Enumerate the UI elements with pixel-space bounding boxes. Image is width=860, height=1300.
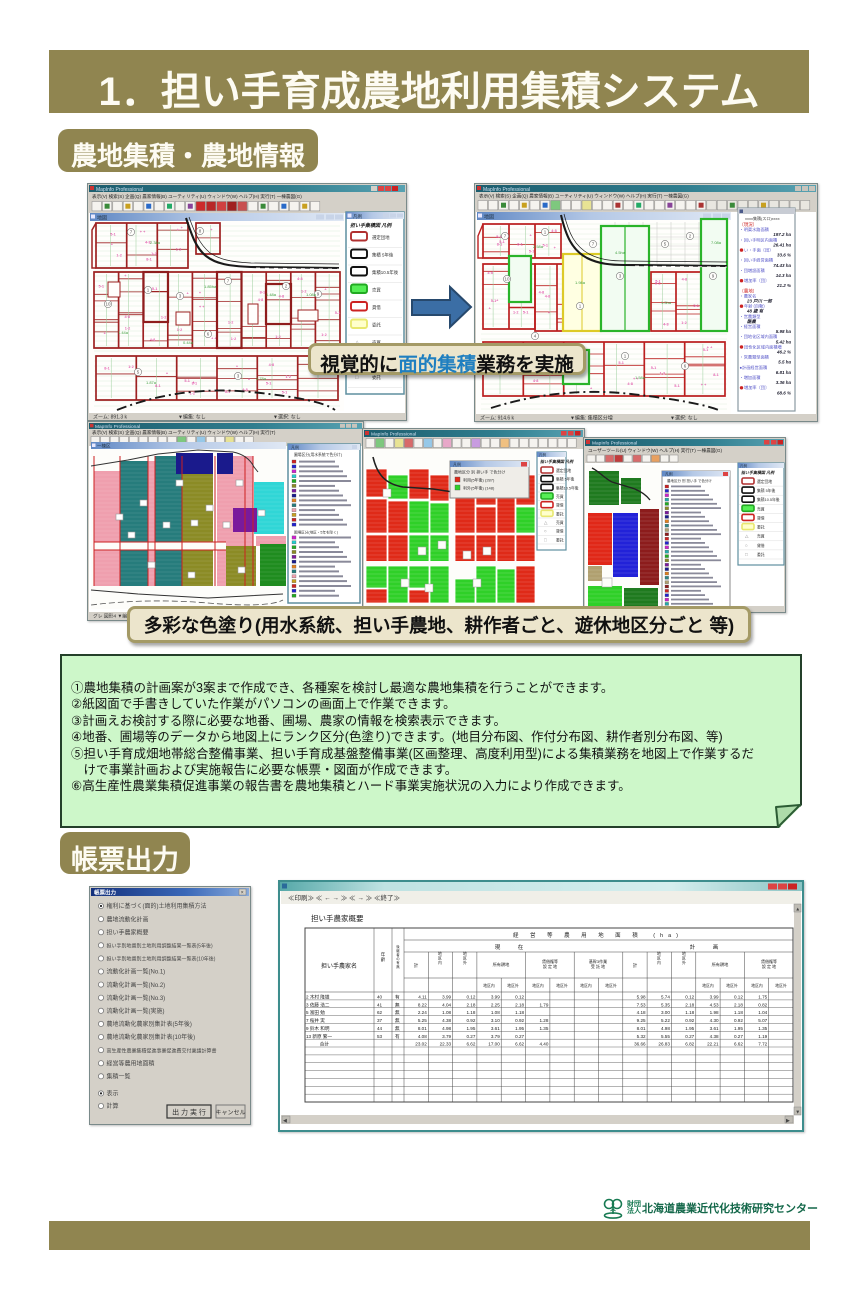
svg-text:5.98: 5.98 [637, 995, 646, 1000]
svg-text:表示(V) 検索(S) 企画(Q) 農家情報(B) ユーティ: 表示(V) 検索(S) 企画(Q) 農家情報(B) ユーティリティ(U) ウィン… [479, 193, 689, 200]
svg-text:0.92: 0.92 [466, 1018, 475, 1023]
svg-text:地区外: 地区外 [775, 983, 787, 988]
svg-text:5 富田 勉: 5 富田 勉 [306, 1009, 325, 1016]
svg-text:23.02: 23.02 [415, 1042, 427, 1047]
svg-text:8.01: 8.01 [418, 1026, 427, 1031]
svg-text:凡例: 凡例 [740, 463, 748, 468]
svg-text:1.18: 1.18 [515, 1010, 524, 1015]
svg-text:7.53: 7.53 [637, 1002, 646, 1007]
svg-text:2.18: 2.18 [466, 1002, 475, 1007]
svg-text:4.08: 4.08 [418, 1034, 427, 1039]
svg-text:▲: ▲ [795, 907, 800, 913]
svg-text:1.85ha: 1.85ha [204, 284, 217, 289]
svg-text:・増加面積: ・増加面積 [740, 374, 762, 381]
svg-text:4.98: 4.98 [442, 1026, 451, 1031]
svg-text:内: 内 [657, 960, 661, 965]
svg-text:0.27: 0.27 [734, 1034, 743, 1039]
svg-text:所有耕地: 所有耕地 [493, 961, 511, 968]
svg-text:6.62: 6.62 [515, 1042, 524, 1047]
svg-text:1.08: 1.08 [491, 1010, 500, 1015]
svg-text:8.22: 8.22 [418, 1002, 427, 1007]
svg-text:4·8: 4·8 [150, 338, 156, 342]
svg-text:選定団地: 選定団地 [372, 234, 390, 241]
svg-text:5.5 ha: 5.5 ha [778, 360, 791, 365]
svg-text:6.62: 6.62 [466, 1042, 475, 1047]
svg-text:地区内: 地区内 [532, 983, 544, 988]
svg-text:集積 5年後: 集積 5年後 [372, 252, 394, 259]
svg-text:4.98: 4.98 [661, 1026, 670, 1031]
svg-text:37: 37 [377, 1018, 383, 1023]
svg-text:1·2: 1·2 [116, 253, 122, 257]
svg-text:0.82: 0.82 [758, 1002, 767, 1007]
svg-text:農地区分 別 担い手 で色分け: 農地区分 別 担い手 で色分け [454, 469, 505, 475]
svg-text:5-1: 5-1 [110, 233, 116, 237]
svg-text:3 佐藤 浩二: 3 佐藤 浩二 [306, 1001, 330, 1008]
svg-text:◀: ◀ [283, 1118, 287, 1124]
svg-text:無: 無 [395, 1017, 400, 1024]
svg-text:5-1: 5-1 [693, 304, 699, 308]
svg-text:MapInfo Professional: MapInfo Professional [592, 441, 637, 447]
svg-text:▼編集: なし: ▼編集: なし [178, 414, 206, 421]
svg-text:1·2: 1·2 [231, 337, 237, 341]
svg-text:10: 10 [504, 277, 510, 282]
svg-text:集積10.5年後: 集積10.5年後 [757, 497, 780, 502]
svg-text:5-1: 5-1 [491, 299, 497, 303]
svg-text:ズーム: 891.3 k: ズーム: 891.3 k [93, 414, 128, 421]
svg-text:1.08: 1.08 [442, 1010, 451, 1015]
svg-text:1.95: 1.95 [515, 1026, 524, 1031]
svg-text:1.87a: 1.87a [146, 380, 157, 385]
svg-text:2.18: 2.18 [685, 1002, 694, 1007]
svg-text:+ +: + + [199, 305, 205, 309]
svg-text:・回い手経営面積: ・回い手経営面積 [740, 257, 774, 264]
svg-text:4.30: 4.30 [710, 1018, 719, 1023]
svg-text:▼選択: なし: ▼選択: なし [273, 414, 301, 421]
svg-text:担い手農家概要: 担い手農家概要 [107, 928, 149, 936]
svg-text:4.5ha: 4.5ha [615, 250, 626, 255]
svg-text:2.38a: 2.38a [150, 240, 161, 245]
svg-text:5.22: 5.22 [661, 1018, 670, 1023]
svg-text:・回い手明区内面積: ・回い手明区内面積 [740, 236, 779, 243]
svg-text:○: ○ [544, 529, 547, 534]
svg-text:5-1: 5-1 [282, 390, 288, 394]
svg-text:4·8: 4·8 [551, 229, 557, 233]
svg-text:1·2: 1·2 [176, 248, 182, 252]
svg-text:地図: 地図 [97, 215, 107, 222]
svg-text:14.3 ha: 14.3 ha [776, 273, 792, 278]
svg-text:ユーザーツール(U) ウィンドウ(W) ヘルプ(H): ユーザーツール(U) ウィンドウ(W) ヘルプ(H) 実行(T) 一棟農図(G) [588, 447, 723, 454]
svg-text:7.08a: 7.08a [711, 240, 722, 245]
svg-text:3.99: 3.99 [491, 995, 500, 1000]
svg-text:4·8: 4·8 [258, 298, 264, 302]
svg-text:0.27: 0.27 [515, 1034, 524, 1039]
svg-text:26.83: 26.83 [658, 1042, 670, 1047]
svg-text:8-1: 8-1 [260, 291, 266, 295]
svg-text:4·8: 4·8 [663, 323, 669, 327]
svg-text:貸借: 貸借 [556, 503, 564, 508]
svg-text:現 在: 現 在 [495, 943, 532, 951]
svg-text:4·8: 4·8 [487, 271, 493, 275]
svg-text:地区内: 地区内 [580, 983, 592, 988]
svg-text:×: × [241, 890, 244, 896]
svg-text:0.12: 0.12 [734, 995, 743, 1000]
svg-text:□: □ [745, 552, 748, 557]
svg-text:1·2: 1·2 [681, 321, 687, 325]
svg-text:0.12: 0.12 [685, 995, 694, 1000]
svg-text:●計画経営面積: ●計画経営面積 [740, 364, 768, 371]
svg-text:8-1: 8-1 [192, 382, 198, 386]
svg-text:3.99: 3.99 [710, 995, 719, 1000]
svg-text:委託: 委託 [757, 525, 765, 530]
svg-text:地区内: 地区内 [751, 983, 763, 988]
svg-text:4·8: 4·8 [279, 295, 285, 299]
svg-text:・経営面積: ・経営面積 [740, 323, 762, 330]
svg-text:3.61: 3.61 [710, 1026, 719, 1031]
svg-text:4.53: 4.53 [710, 1002, 719, 1007]
svg-text:40: 40 [377, 995, 383, 1000]
svg-text:選定団地: 選定団地 [757, 479, 772, 484]
svg-text:0.12: 0.12 [515, 995, 524, 1000]
svg-text:5-1: 5-1 [152, 287, 158, 291]
svg-text:2.58a: 2.58a [533, 244, 544, 249]
svg-text:計 画: 計 画 [690, 943, 727, 951]
svg-text:5.25: 5.25 [418, 1018, 427, 1023]
svg-text:出 力 実 行: 出 力 実 行 [172, 1108, 206, 1117]
svg-text:合計: 合計 [306, 1041, 329, 1048]
svg-text:増加率〔団〕: 増加率〔団〕 [744, 384, 769, 391]
svg-text:4.18: 4.18 [637, 1010, 646, 1015]
svg-text:圃場区分(用水系統で色分け): 圃場区分(用水系統で色分け) [294, 452, 343, 457]
svg-text:農地流動化農家別集計表(5年後): 農地流動化農家別集計表(5年後) [107, 1020, 192, 1028]
svg-text:貸借: 貸借 [372, 304, 381, 311]
svg-text:0.27: 0.27 [466, 1034, 475, 1039]
svg-text:貸借: 貸借 [757, 515, 765, 520]
svg-text:担い手別地番別土地利用調整結果一覧表(5年後): 担い手別地番別土地利用調整結果一覧表(5年後) [107, 943, 213, 950]
svg-text:凡例: 凡例 [453, 461, 461, 467]
svg-text:集積10.5年後: 集積10.5年後 [372, 269, 399, 276]
svg-text:0.92: 0.92 [685, 1018, 694, 1023]
svg-text:集積10.5年後: 集積10.5年後 [556, 485, 579, 490]
svg-text:68.6 %: 68.6 % [777, 390, 791, 395]
svg-text:6.81 ha: 6.81 ha [776, 370, 792, 375]
svg-text:3.36 ha: 3.36 ha [776, 380, 792, 385]
svg-text:圃場区分(地区・5年を除く): 圃場区分(地区・5年を除く) [294, 529, 338, 534]
svg-text:41: 41 [377, 1002, 383, 1007]
svg-text:1.95: 1.95 [685, 1026, 694, 1031]
svg-text:設 定 地: 設 定 地 [762, 963, 776, 969]
svg-text:増加率〔団〕: 増加率〔団〕 [744, 277, 769, 284]
svg-text:4.11: 4.11 [418, 995, 427, 1000]
svg-text:担い手集積図 凡例: 担い手集積図 凡例 [350, 222, 392, 229]
svg-text:1.08a: 1.08a [306, 292, 317, 297]
svg-text:4·8: 4·8 [627, 382, 633, 386]
svg-text:≪印刷≫ ≪ ← → ≫ ≪ → ≫ ≪終了≫: ≪印刷≫ ≪ ← → ≫ ≪ → ≫ ≪終了≫ [288, 893, 400, 902]
svg-text:7 桜井 実: 7 桜井 実 [306, 1017, 325, 1024]
svg-text:地図: 地図 [484, 214, 494, 221]
svg-text:5-1: 5-1 [499, 240, 505, 244]
svg-text:委託: 委託 [556, 537, 564, 542]
svg-text:担い手別地番別土地利用調整結果一覧表(10年後): 担い手別地番別土地利用調整結果一覧表(10年後) [107, 956, 216, 963]
svg-text:1.5ha: 1.5ha [661, 300, 672, 305]
svg-text:8-1: 8-1 [713, 373, 719, 377]
svg-text:委託: 委託 [372, 322, 381, 329]
svg-text:0.44a: 0.44a [183, 340, 194, 345]
svg-text:44: 44 [377, 1026, 383, 1031]
svg-text:17.00: 17.00 [488, 1042, 500, 1047]
svg-text:0.78a: 0.78a [256, 376, 267, 381]
svg-text:集積 5年後: 集積 5年後 [757, 488, 776, 493]
svg-text:計算: 計算 [107, 1102, 119, 1110]
svg-text:売買: 売買 [372, 287, 381, 294]
svg-text:地区外: 地区外 [605, 983, 617, 988]
svg-text:1·2: 1·2 [513, 310, 519, 314]
svg-text:計: 計 [414, 962, 419, 969]
svg-text:1.79: 1.79 [539, 1002, 548, 1007]
svg-text:2.18: 2.18 [734, 1002, 743, 1007]
svg-text:+ +: + + [140, 230, 146, 234]
svg-text:売買: 売買 [757, 534, 765, 539]
svg-text:選定団地: 選定団地 [556, 468, 571, 473]
svg-text:1.18: 1.18 [466, 1010, 475, 1015]
svg-text:MapInfo Professional: MapInfo Professional [371, 432, 416, 438]
svg-text:内: 内 [438, 960, 442, 965]
svg-text:計: 計 [633, 962, 638, 969]
svg-text:8-1: 8-1 [146, 257, 152, 261]
svg-text:担い手集積図 凡例: 担い手集積図 凡例 [741, 470, 775, 475]
svg-text:5-1: 5-1 [496, 235, 502, 239]
svg-text:2.25: 2.25 [491, 1002, 500, 1007]
svg-text:5-1: 5-1 [184, 379, 190, 383]
svg-text:1.95: 1.95 [466, 1026, 475, 1031]
svg-text:0.92: 0.92 [734, 1018, 743, 1023]
svg-text:0.27: 0.27 [685, 1034, 694, 1039]
svg-text:0.12: 0.12 [466, 995, 475, 1000]
svg-text:21.2 %: 21.2 % [776, 283, 791, 288]
svg-text:3.79: 3.79 [442, 1034, 451, 1039]
svg-text:3.00: 3.00 [661, 1010, 670, 1015]
svg-text:26.41 ha: 26.41 ha [772, 242, 791, 247]
svg-text:▼編集: 集積区分増: ▼編集: 集積区分増 [570, 414, 613, 421]
svg-text:13 新原 繁一: 13 新原 繁一 [306, 1033, 332, 1040]
svg-text:1.48a: 1.48a [266, 292, 277, 297]
svg-text:流動化計画一覧(No.2): 流動化計画一覧(No.2) [107, 981, 166, 989]
svg-text:地区外: 地区外 [556, 983, 568, 988]
svg-text:貸借: 貸借 [556, 529, 564, 534]
svg-text:8-1: 8-1 [517, 243, 523, 247]
svg-text:1.35: 1.35 [539, 1026, 548, 1031]
svg-text:5-1: 5-1 [266, 382, 272, 386]
svg-text:1.35: 1.35 [758, 1026, 767, 1031]
svg-text:地区内: 地区内 [483, 983, 495, 988]
svg-text:ズーム: 914.6 k: ズーム: 914.6 k [480, 414, 515, 421]
svg-text:1.98: 1.98 [710, 1010, 719, 1015]
svg-text:凡例: 凡例 [291, 444, 299, 450]
svg-text:設 定 地: 設 定 地 [543, 963, 557, 969]
svg-text:1·2: 1·2 [161, 315, 167, 319]
svg-text:1.28: 1.28 [539, 1018, 548, 1023]
svg-text:▶: ▶ [786, 1118, 790, 1124]
svg-text:農地区分 別 担い手 で色分け: 農地区分 別 担い手 で色分け [667, 478, 712, 483]
svg-text:1.19: 1.19 [758, 1034, 767, 1039]
svg-text:齢: 齢 [381, 956, 386, 963]
svg-text:1.18: 1.18 [734, 1010, 743, 1015]
svg-text:8-1: 8-1 [104, 366, 110, 370]
svg-text:4.04: 4.04 [442, 1002, 451, 1007]
svg-text:2.24: 2.24 [418, 1010, 427, 1015]
svg-text:xxxx集積(スロ)xxxx: xxxx集積(スロ)xxxx [745, 215, 780, 221]
svg-text:売買: 売買 [556, 520, 564, 525]
svg-text:農地流動化農家別集計表(10年後): 農地流動化農家別集計表(10年後) [107, 1033, 196, 1041]
svg-text:▼: ▼ [795, 1110, 800, 1116]
svg-text:凡例: 凡例 [353, 213, 362, 220]
svg-text:22.33: 22.33 [440, 1042, 452, 1047]
svg-text:所有耕地: 所有耕地 [712, 961, 730, 968]
svg-text:▼選択: なし: ▼選択: なし [670, 414, 698, 421]
svg-text:1.44a: 1.44a [118, 330, 129, 335]
svg-text:62: 62 [377, 1010, 383, 1015]
svg-text:外: 外 [463, 960, 467, 965]
svg-text:外: 外 [682, 960, 686, 965]
svg-text:1.95: 1.95 [734, 1026, 743, 1031]
svg-text:表示(V) 検索(S) 企画(Q) 農家情報(B) ユーティ: 表示(V) 検索(S) 企画(Q) 農家情報(B) ユーティリティ(U) ウィン… [92, 429, 276, 436]
svg-text:流動化計画一覧(実施): 流動化計画一覧(実施) [107, 1007, 165, 1015]
svg-text:地区外: 地区外 [507, 983, 519, 988]
svg-text:7.72: 7.72 [758, 1042, 767, 1047]
svg-text:1·2: 1·2 [151, 252, 157, 256]
svg-text:△: △ [544, 520, 548, 525]
svg-text:委託: 委託 [556, 511, 564, 516]
svg-text:4.40: 4.40 [539, 1042, 548, 1047]
svg-text:凡例: 凡例 [665, 472, 673, 477]
svg-text:2 木村 隆雄: 2 木村 隆雄 [306, 994, 330, 1001]
svg-text:4·8: 4·8 [682, 277, 688, 281]
svg-text:一棟区: 一棟区 [97, 443, 111, 450]
svg-text:9 鈴木 和明: 9 鈴木 和明 [306, 1025, 330, 1032]
svg-text:1·2: 1·2 [128, 365, 134, 369]
svg-text:4·8: 4·8 [125, 315, 131, 319]
svg-text:5-1: 5-1 [651, 366, 657, 370]
svg-text:46.2 %: 46.2 % [776, 350, 791, 355]
svg-text:5.07: 5.07 [758, 1018, 767, 1023]
svg-text:8.01: 8.01 [637, 1026, 646, 1031]
svg-text:△: △ [745, 534, 749, 539]
svg-text:4·8: 4·8 [269, 363, 275, 367]
svg-text:・営農類型面積: ・営農類型面積 [740, 354, 770, 361]
svg-text:5.55: 5.55 [661, 1034, 670, 1039]
svg-text:い・手面〔団〕: い・手面〔団〕 [744, 247, 773, 254]
svg-text:・団増設面積: ・団増設面積 [740, 267, 766, 274]
svg-text:1.04: 1.04 [758, 1010, 767, 1015]
svg-text:9.25: 9.25 [637, 1018, 646, 1023]
svg-text:1·2: 1·2 [321, 333, 327, 337]
svg-text:22.21: 22.21 [707, 1042, 719, 1047]
svg-text:無: 無 [395, 1001, 400, 1008]
svg-text:担い手農家概要: 担い手農家概要 [311, 913, 364, 923]
svg-text:+ +: + + [701, 383, 707, 387]
svg-text:5-1: 5-1 [674, 384, 680, 388]
svg-text:0.92: 0.92 [515, 1018, 524, 1023]
svg-text:5-1: 5-1 [618, 361, 624, 365]
svg-text:53: 53 [377, 1034, 383, 1039]
svg-text:5-1: 5-1 [543, 243, 549, 247]
svg-text:4.38: 4.38 [442, 1018, 451, 1023]
svg-text:表示(V) 検索(S) 企画(Q) 農家情報(B) ユーティ: 表示(V) 検索(S) 企画(Q) 農家情報(B) ユーティリティ(U) ウィン… [92, 193, 302, 200]
svg-text:5.32: 5.32 [637, 1034, 646, 1039]
svg-text:集積一覧: 集積一覧 [107, 1073, 131, 1081]
svg-text:経営等農用地面積: 経営等農用地面積 [107, 1059, 155, 1067]
svg-text:有: 有 [395, 994, 400, 1001]
svg-text:帳票出力: 帳票出力 [94, 889, 117, 897]
svg-text:3.79: 3.79 [491, 1034, 500, 1039]
svg-text:・明渠水路面積: ・明渠水路面積 [740, 226, 770, 233]
svg-text:農地流動化計画: 農地流動化計画 [107, 915, 149, 923]
svg-text:5-1: 5-1 [335, 311, 341, 315]
svg-text:流動化計画一覧(No.1): 流動化計画一覧(No.1) [107, 968, 166, 976]
svg-text:1·2: 1·2 [275, 335, 281, 339]
svg-text:4·8: 4·8 [545, 294, 551, 298]
svg-text:・団地化区域内面積: ・団地化区域内面積 [740, 333, 779, 340]
svg-text:1.18: 1.18 [685, 1010, 694, 1015]
svg-text:○: ○ [745, 543, 748, 548]
svg-text:33.6 %: 33.6 % [777, 253, 791, 258]
svg-text:1.75: 1.75 [758, 995, 767, 1000]
svg-text:5.74: 5.74 [661, 995, 670, 1000]
svg-text:権利に基づく(面的)土地利用集積方法: 権利に基づく(面的)土地利用集積方法 [107, 902, 207, 910]
svg-text:経 営 等 農 用 地 面 積 (ha): 経 営 等 農 用 地 面 積 (ha) [513, 931, 683, 939]
svg-text:1.58a: 1.58a [635, 375, 646, 380]
svg-text:5-1: 5-1 [99, 284, 105, 288]
svg-text:担い手集積図 凡例: 担い手集積図 凡例 [540, 459, 574, 464]
svg-text:売買: 売買 [757, 506, 765, 511]
svg-text:地区内: 地区内 [702, 983, 714, 988]
svg-text:凡例: 凡例 [539, 452, 547, 457]
svg-text:キャンセル: キャンセル [215, 1110, 245, 1117]
svg-text:4·8: 4·8 [297, 277, 303, 281]
svg-text:5-1: 5-1 [529, 250, 535, 254]
svg-text:4.38: 4.38 [710, 1034, 719, 1039]
svg-text:集積 5年後: 集積 5年後 [556, 477, 575, 482]
svg-text:地区外: 地区外 [726, 983, 738, 988]
svg-text:10: 10 [105, 302, 111, 307]
svg-text:受 託 地: 受 託 地 [591, 963, 605, 969]
svg-text:3.61: 3.61 [491, 1026, 500, 1031]
svg-text:5.35: 5.35 [661, 1002, 670, 1007]
svg-text:1·2: 1·2 [228, 321, 234, 325]
svg-text:無: 無 [395, 1025, 400, 1032]
svg-text:有: 有 [395, 1033, 400, 1040]
svg-text:高生産性農業集積促進事業促進費交付稟議計算書: 高生産性農業集積促進事業促進費交付稟議計算書 [107, 1047, 217, 1054]
svg-text:6.62: 6.62 [734, 1042, 743, 1047]
svg-text:無: 無 [395, 1009, 400, 1016]
svg-text:1.98a: 1.98a [575, 280, 586, 285]
svg-text:5-1: 5-1 [523, 311, 529, 315]
svg-text:□: □ [544, 537, 547, 542]
svg-text:委託: 委託 [757, 552, 765, 557]
svg-text:2.18: 2.18 [515, 1002, 524, 1007]
svg-text:1·2: 1·2 [660, 372, 666, 376]
svg-text:利外(5年後) (148): 利外(5年後) (148) [463, 485, 495, 491]
svg-text:74.43 ha: 74.43 ha [773, 263, 791, 268]
svg-text:4·8: 4·8 [533, 379, 539, 383]
svg-text:担い手農家名: 担い手農家名 [321, 962, 357, 970]
svg-text:利用(5年後) (287): 利用(5年後) (287) [463, 477, 495, 483]
svg-text:6.82: 6.82 [685, 1042, 694, 1047]
svg-text:8-1: 8-1 [655, 282, 661, 286]
svg-text:3.99: 3.99 [442, 995, 451, 1000]
svg-text:5.98 ha: 5.98 ha [776, 329, 792, 334]
svg-text:売買: 売買 [556, 494, 564, 499]
svg-text:+ +: + + [707, 345, 713, 349]
